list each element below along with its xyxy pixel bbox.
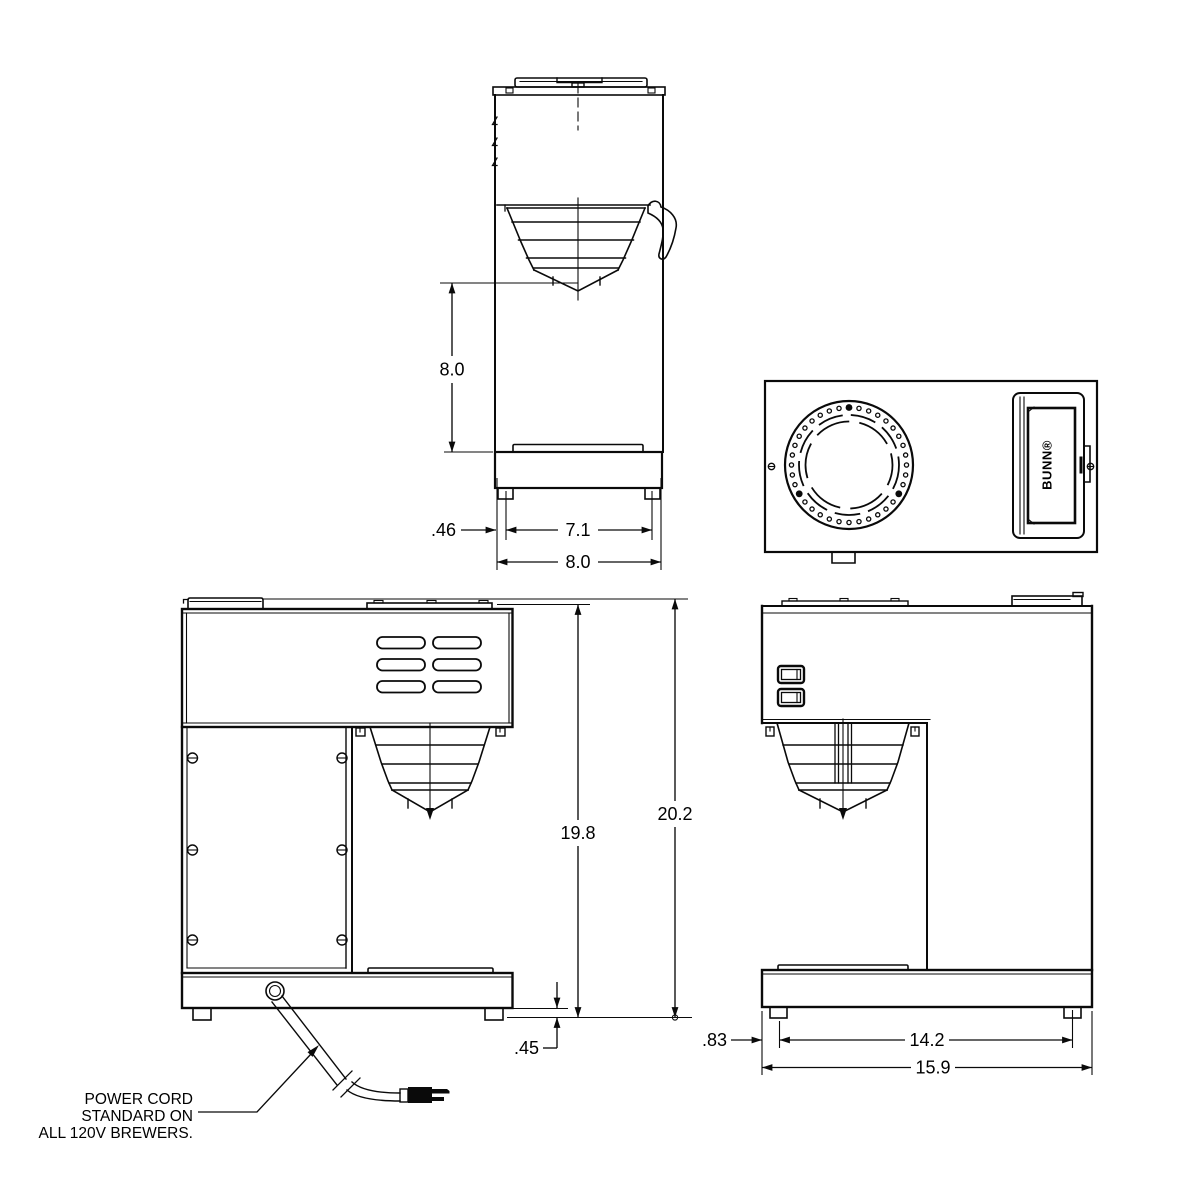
foot [193, 1008, 211, 1020]
dimension-base-depth: .83 14.2 15.9 [702, 1010, 1092, 1080]
side-profile-view: .83 14.2 15.9 [702, 593, 1092, 1081]
rear-tab [832, 552, 855, 563]
dim-foot-height-label: .45 [514, 1038, 539, 1058]
foot [485, 1008, 503, 1020]
funnel-rail-lid-front [367, 601, 492, 610]
switch-lower [778, 689, 804, 706]
note-line-2: STANDARD ON [81, 1108, 193, 1125]
tank-lid [506, 78, 655, 93]
brew-funnel-side [507, 198, 645, 300]
dim-foot-inset-label: .46 [431, 520, 456, 540]
base-side [495, 452, 662, 488]
dim-profile-foot-span-label: 14.2 [909, 1030, 944, 1050]
drip-tray-lip [513, 445, 643, 453]
vent-slots [377, 637, 481, 693]
upper-body [182, 609, 513, 727]
dim-overall-height-label: 20.2 [657, 804, 692, 824]
power-plug [400, 1087, 450, 1103]
switch-upper [778, 666, 804, 683]
note-line-1: POWER CORD [85, 1091, 194, 1108]
tower-column [182, 727, 352, 973]
power-cord [266, 982, 400, 1101]
dimension-drawing-page: 8.0 .46 7.1 8.0 [0, 0, 1200, 1200]
side-elevation-view: 8.0 .46 7.1 8.0 [431, 78, 676, 574]
front-elevation-view: POWER CORD STANDARD ON ALL 120V BREWERS.… [39, 598, 698, 1142]
dim-foot-span-label: 7.1 [565, 520, 590, 540]
tank-lid-profile [1012, 593, 1083, 607]
foot [770, 1007, 787, 1018]
dim-height-to-top-label: 19.8 [560, 823, 595, 843]
dimension-funnel-clearance: 8.0 [433, 283, 578, 452]
brew-funnel-front [356, 723, 505, 820]
note-line-3: ALL 120V BREWERS. [39, 1125, 194, 1142]
top-plan-view: BUNN® [765, 381, 1097, 563]
dimension-base-bottom: .46 7.1 8.0 [431, 478, 661, 574]
bolt [895, 490, 902, 497]
screw [768, 463, 774, 469]
base-front [182, 973, 513, 1008]
top-trim-band [493, 87, 665, 95]
dim-base-depth-label: 15.9 [915, 1058, 950, 1078]
dimension-foot-height: .45 [514, 982, 557, 1058]
power-cord-note: POWER CORD STANDARD ON ALL 120V BREWERS. [39, 1045, 320, 1142]
dim-base-width-label: 8.0 [565, 552, 590, 572]
funnel-rail-lid-profile [782, 599, 908, 607]
sprayhead-hole-ring [789, 405, 908, 524]
sprayhead-circle [785, 401, 913, 529]
brew-funnel-profile [766, 719, 919, 820]
bolt [796, 490, 803, 497]
panel-screws [188, 753, 348, 945]
tank-lid-front [184, 598, 264, 609]
dim-clearance-label: 8.0 [439, 360, 464, 380]
funnel-rail-lid-top: BUNN® [1013, 393, 1090, 538]
base-profile [762, 970, 1092, 1007]
bolt [846, 404, 853, 411]
bunn-logo-text: BUNN® [1040, 440, 1055, 490]
body-profile [762, 606, 1092, 970]
dim-profile-foot-inset-label: .83 [702, 1030, 727, 1050]
